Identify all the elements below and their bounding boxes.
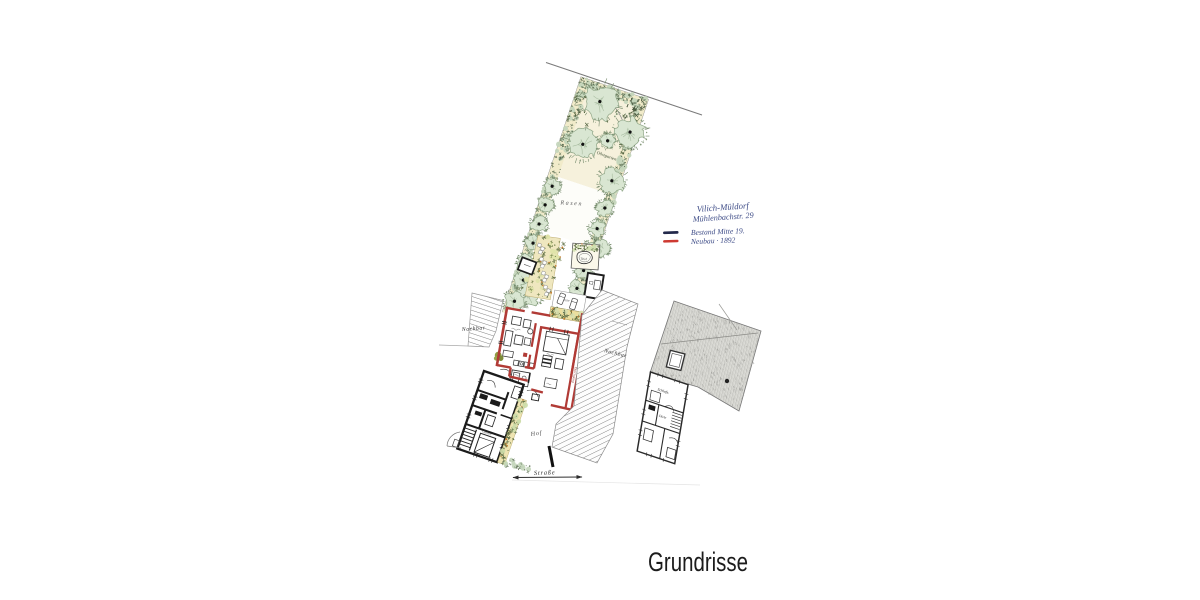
svg-text:Grundrisse: Grundrisse	[648, 547, 748, 577]
svg-text:Teich: Teich	[580, 257, 587, 261]
svg-text:Neubau · 1892: Neubau · 1892	[690, 235, 736, 246]
svg-text:Straße: Straße	[534, 469, 556, 477]
